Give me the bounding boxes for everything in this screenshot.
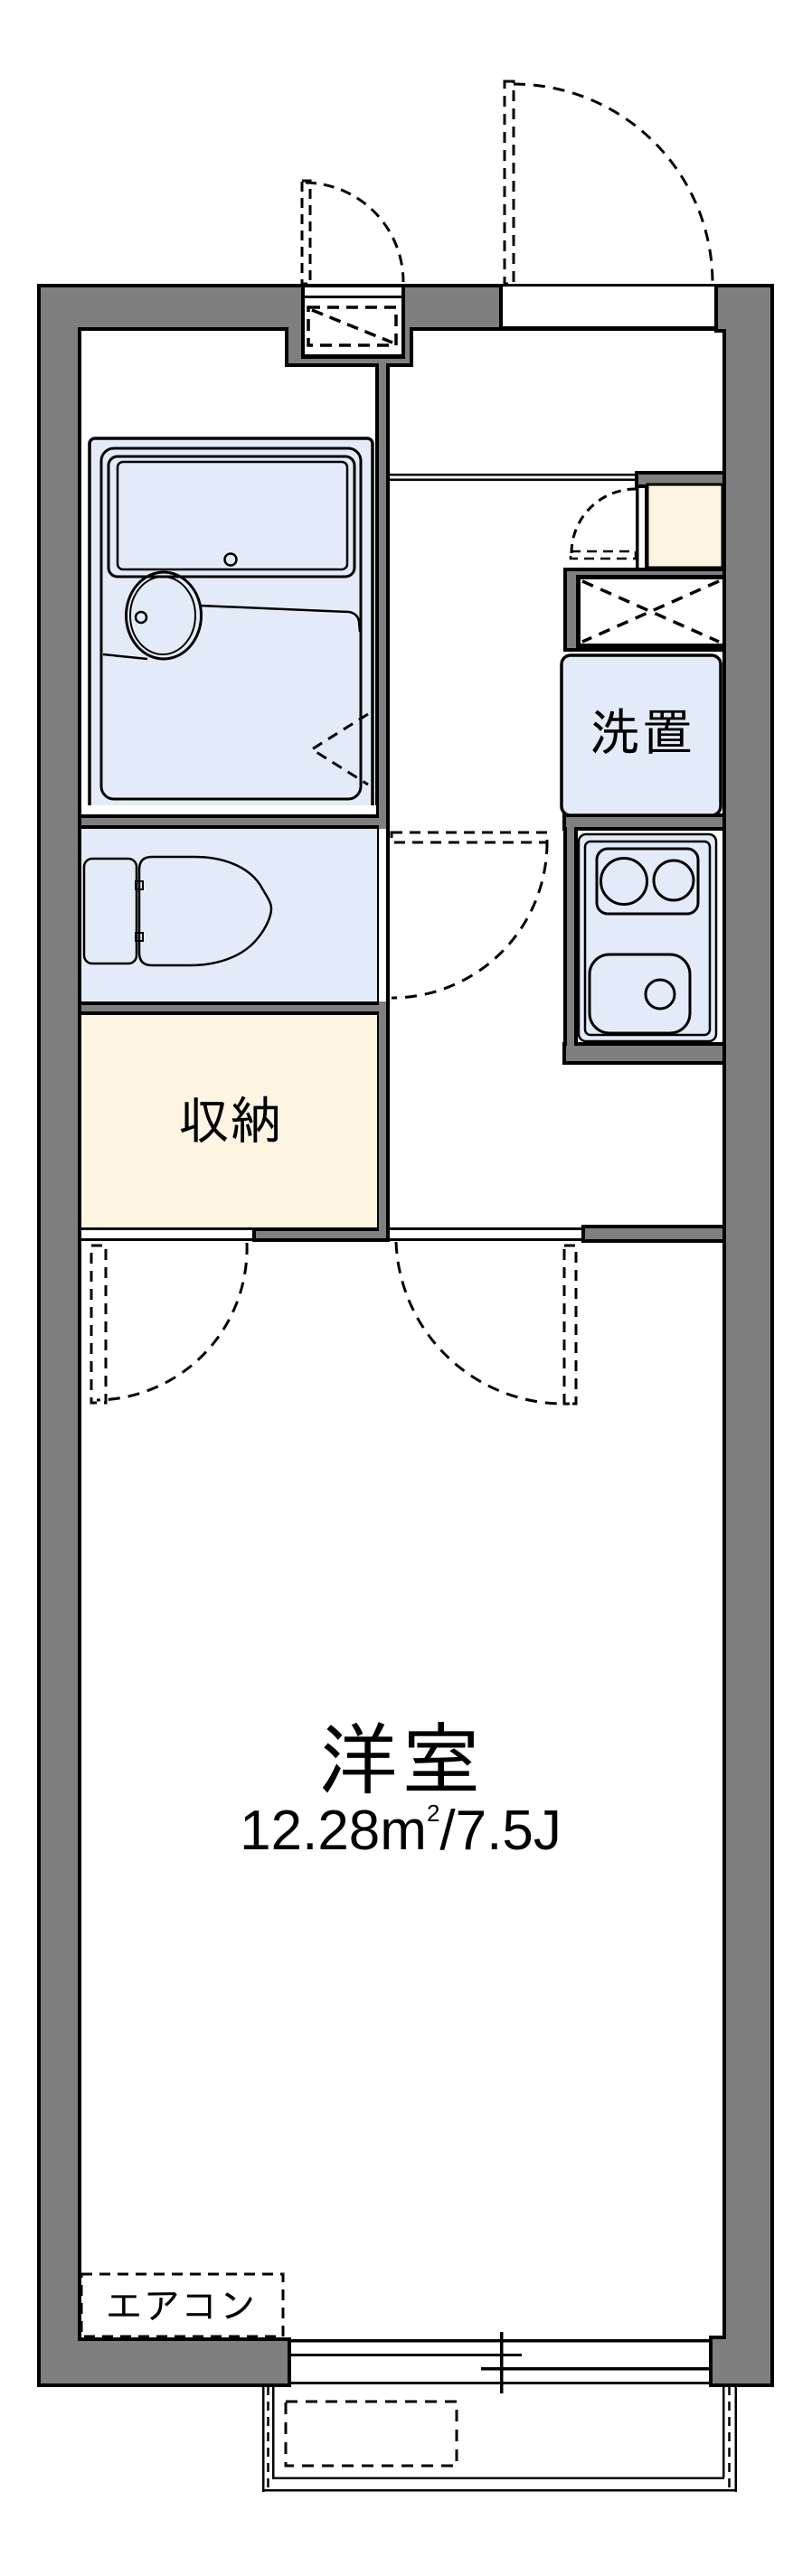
svg-text:12.28m2/7.5J: 12.28m2/7.5J [240, 1800, 562, 1862]
